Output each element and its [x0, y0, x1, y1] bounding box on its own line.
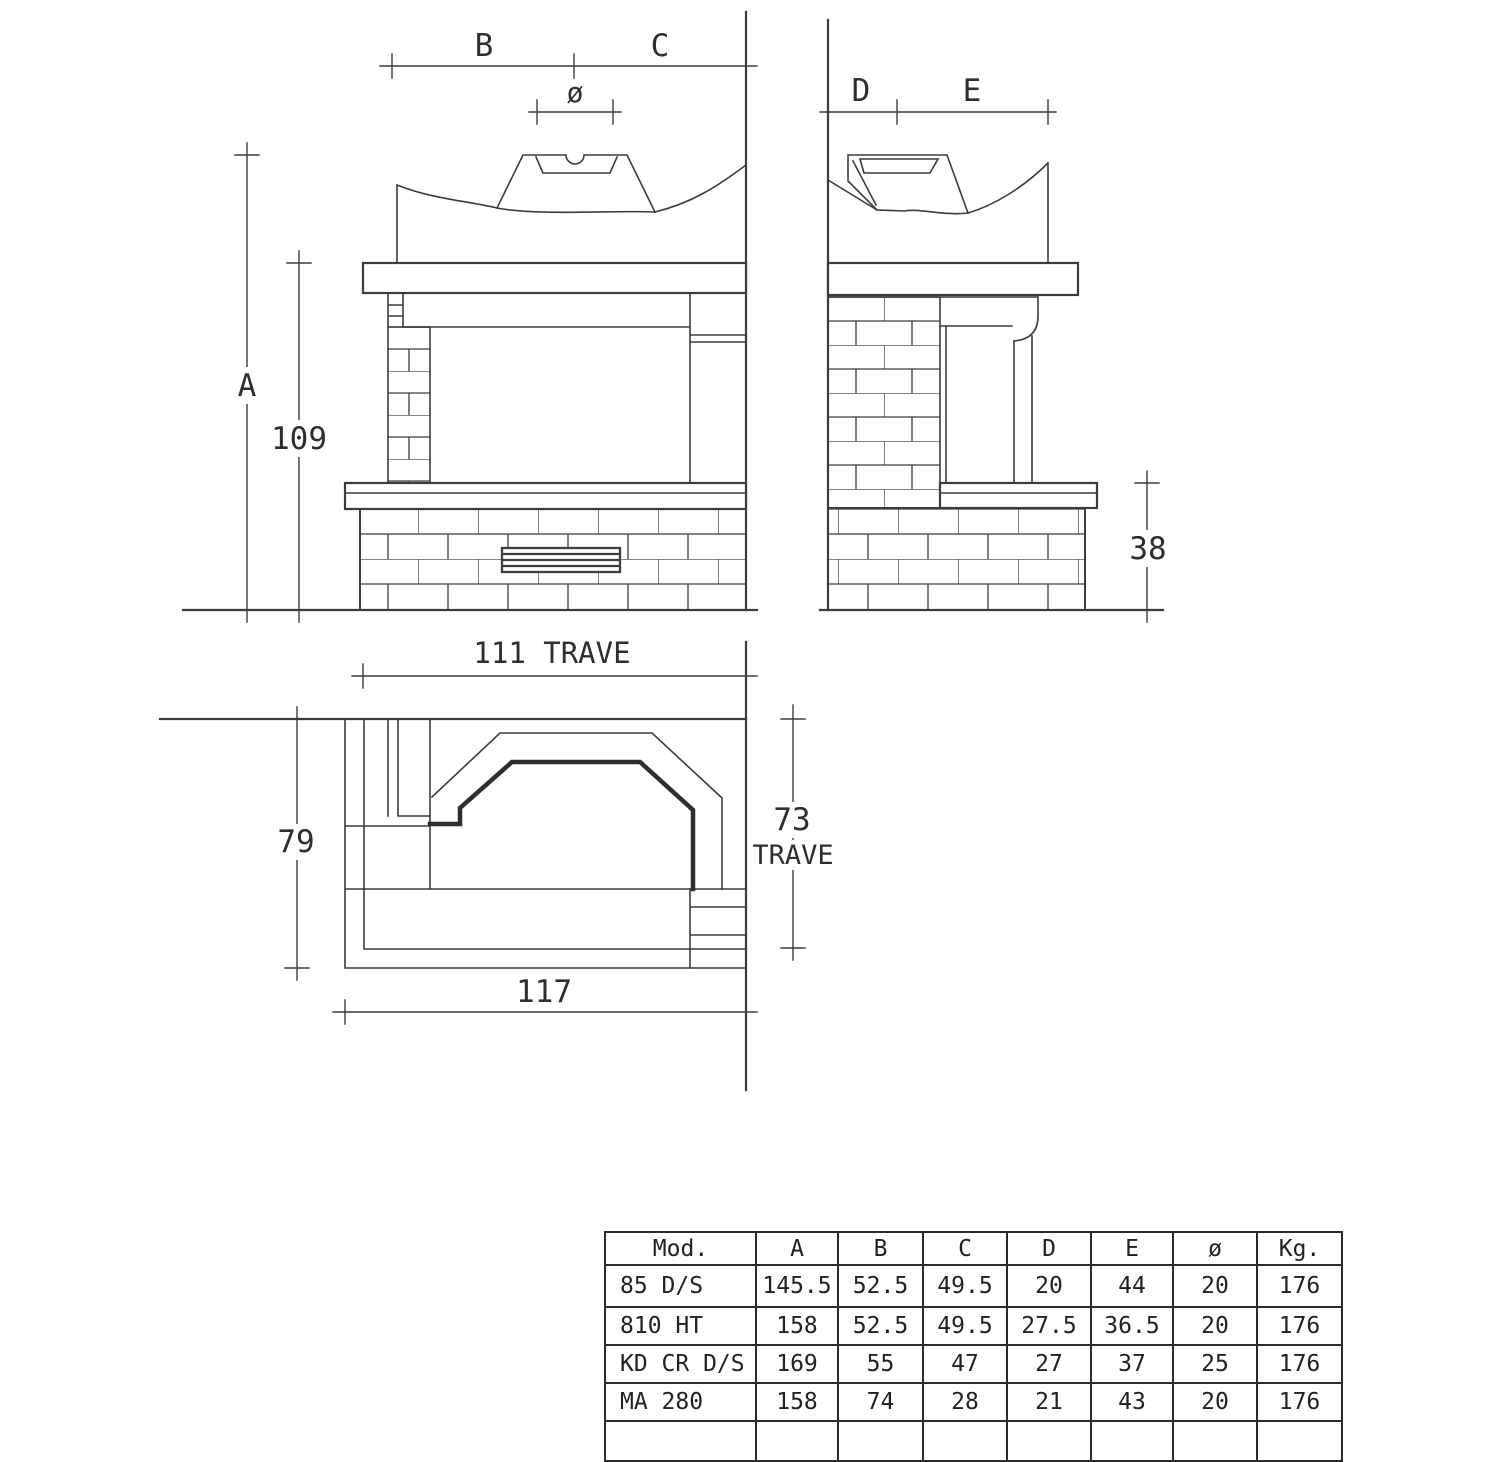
table-header-mod: Mod.: [605, 1232, 756, 1265]
front-right-column: [690, 293, 746, 483]
table-cell: 43: [1091, 1383, 1173, 1421]
dim-117-label: 117: [516, 974, 572, 1010]
dim-109-label: 109: [271, 421, 327, 457]
table-cell: [605, 1421, 756, 1461]
table-cell: 27.5: [1007, 1307, 1091, 1345]
dim-depth: 79: [269, 707, 323, 980]
table-cell: 49.5: [923, 1265, 1007, 1307]
dim-overall-width: 117: [333, 974, 757, 1024]
plan-view: 111 TRAVE 79 73 TRAVE 117: [160, 636, 837, 1090]
dim-38-label: 38: [1129, 531, 1166, 567]
table-header-c: C: [923, 1232, 1007, 1265]
side-brick-wall: [828, 297, 940, 508]
front-left-brick-pier: [388, 327, 430, 483]
table-header-a: A: [756, 1232, 838, 1265]
technical-drawing: A 109 B C ø D E: [0, 0, 1500, 1427]
dimensions-table: Mod. A B C D E ø Kg. 85 D/S 145.5 52.5 4…: [604, 1231, 1344, 1462]
dim-e-label: E: [963, 73, 982, 109]
plan-arch-outer: [432, 733, 722, 889]
table-cell: [1091, 1421, 1173, 1461]
table-header-diameter: ø: [1173, 1232, 1257, 1265]
dim-79-label: 79: [277, 824, 314, 860]
table-header-kg: Kg.: [1257, 1232, 1342, 1265]
table-header-row: Mod. A B C D E ø Kg.: [605, 1232, 1342, 1265]
table-cell: 145.5: [756, 1265, 838, 1307]
table-cell: [756, 1421, 838, 1461]
table-cell-model: 85 D/S: [605, 1265, 756, 1307]
table-header-d: D: [1007, 1232, 1091, 1265]
plan-outline: [345, 719, 746, 968]
table-cell: 49.5: [923, 1307, 1007, 1345]
table-cell: 176: [1257, 1265, 1342, 1307]
table-cell: 44: [1091, 1265, 1173, 1307]
table-row-partial: [605, 1421, 1342, 1461]
table-cell: 55: [838, 1345, 923, 1383]
table-cell: 25: [1173, 1345, 1257, 1383]
dim-diameter-label: ø: [567, 76, 584, 109]
side-chimney-cap: [848, 155, 968, 214]
front-mantel-shelf: [363, 263, 746, 293]
table-cell: [1257, 1421, 1342, 1461]
side-elevation-view: D E 38: [820, 20, 1173, 622]
table-cell-model: MA 280: [605, 1383, 756, 1421]
table-cell: 74: [838, 1383, 923, 1421]
front-elevation-view: A 109 B C ø: [183, 12, 757, 622]
front-hearth-slab: [345, 483, 746, 509]
table-header-b: B: [838, 1232, 923, 1265]
dim-73-unit-label: TRAVE: [752, 840, 833, 871]
dim-mantel-height: 109: [270, 251, 328, 622]
table-cell: 20: [1173, 1265, 1257, 1307]
side-frame-columns: [946, 326, 1032, 483]
table-cell: 52.5: [838, 1265, 923, 1307]
table-cell: [1007, 1421, 1091, 1461]
side-mantel-shelf: [828, 263, 1078, 295]
dim-a: A: [229, 143, 265, 622]
table-cell: 20: [1173, 1383, 1257, 1421]
table-row: MA 280 158 74 28 21 43 20 176: [605, 1383, 1342, 1421]
table-cell-model: 810 HT: [605, 1307, 756, 1345]
dim-b-label: B: [475, 28, 494, 64]
side-corbel-moulding: [1014, 297, 1038, 341]
dim-beam-depth: 73 TRAVE: [749, 705, 837, 960]
dim-a-label: A: [238, 368, 257, 404]
table-cell: 52.5: [838, 1307, 923, 1345]
dim-d-label: D: [852, 73, 871, 109]
plan-hearth-right-step: [690, 889, 746, 968]
dim-b-c: B C: [380, 28, 757, 78]
table-row: KD CR D/S 169 55 47 27 37 25 176: [605, 1345, 1342, 1383]
table-cell: [838, 1421, 923, 1461]
front-chimney-cap: [497, 155, 655, 212]
front-grill: [502, 548, 620, 572]
table-cell: 20: [1173, 1307, 1257, 1345]
table-cell: 176: [1257, 1345, 1342, 1383]
dim-d-e: D E: [820, 73, 1056, 124]
plan-arch-inner: [430, 762, 693, 889]
table-cell: 36.5: [1091, 1307, 1173, 1345]
side-brick-base: [828, 508, 1085, 610]
front-roofline: [397, 165, 746, 263]
table-cell: 27: [1007, 1345, 1091, 1383]
table-cell: [1173, 1421, 1257, 1461]
dim-plinth-height: 38: [1123, 471, 1173, 622]
table-cell: 47: [923, 1345, 1007, 1383]
table-row: 810 HT 158 52.5 49.5 27.5 36.5 20 176: [605, 1307, 1342, 1345]
dim-73-label: 73: [773, 802, 810, 838]
table-cell: 37: [1091, 1345, 1173, 1383]
table-cell: 176: [1257, 1307, 1342, 1345]
table-cell: 169: [756, 1345, 838, 1383]
table-cell: 20: [1007, 1265, 1091, 1307]
table-row: 85 D/S 145.5 52.5 49.5 20 44 20 176: [605, 1265, 1342, 1307]
table-cell: 21: [1007, 1383, 1091, 1421]
dim-111-label: 111 TRAVE: [473, 636, 630, 670]
table-cell: 176: [1257, 1383, 1342, 1421]
table-cell: 158: [756, 1383, 838, 1421]
table-cell: 28: [923, 1383, 1007, 1421]
table-cell: [923, 1421, 1007, 1461]
dim-c-label: C: [651, 28, 670, 64]
dim-diameter: ø: [529, 76, 621, 124]
side-hearth-slab: [940, 483, 1097, 508]
front-pier-top-stones: [388, 293, 403, 327]
dim-beam-width: 111 TRAVE: [352, 636, 757, 688]
table-cell-model: KD CR D/S: [605, 1345, 756, 1383]
table-cell: 158: [756, 1307, 838, 1345]
table-header-e: E: [1091, 1232, 1173, 1265]
